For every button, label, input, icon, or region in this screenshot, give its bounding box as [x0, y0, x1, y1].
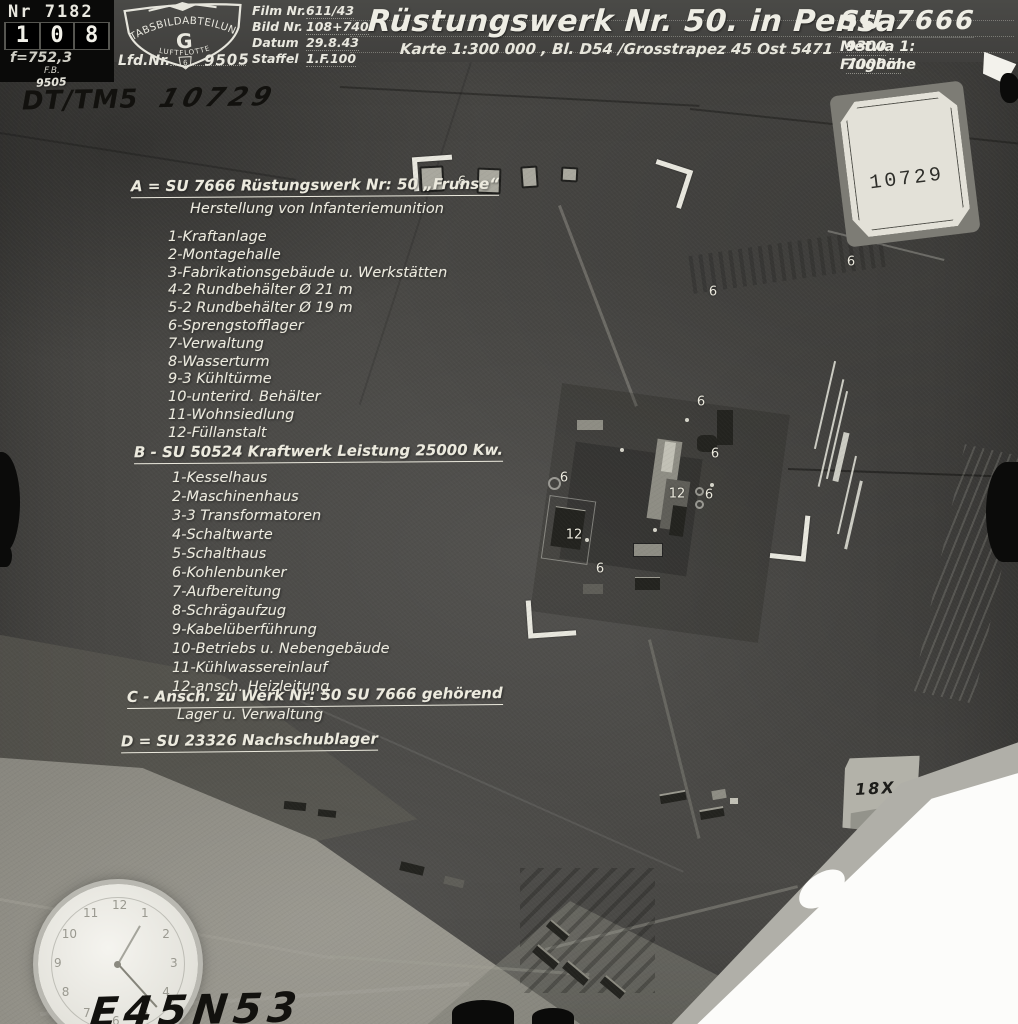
eagle-icon: [169, 1, 195, 11]
emblem-bottom-number: 6: [183, 59, 188, 67]
annotation-item: 8-Schrägaufzug: [172, 602, 390, 621]
film-field-value: 611/43: [306, 3, 354, 19]
film-field-label: Film Nr.: [252, 3, 306, 18]
annotation-item: 3-Fabrikationsgebäude u. Werkstätten: [168, 265, 447, 283]
annotation-item: 7-Verwaltung: [168, 336, 447, 354]
annotation-item: 7-Aufbereitung: [172, 583, 390, 602]
annotation-item: 6-Sprengstofflager: [168, 318, 447, 336]
section-c-subheading: Lager u. Verwaltung: [177, 707, 323, 723]
annotation-item: 2-Maschinenhaus: [172, 488, 390, 507]
annotation-item: 9-Kabelüberführung: [172, 621, 390, 640]
annotation-item: 2-Montagehalle: [168, 247, 447, 265]
annotation-item: 1-Kesselhaus: [172, 469, 390, 488]
section-a-items: 1-Kraftanlage2-Montagehalle3-Fabrikation…: [168, 229, 447, 443]
aerial-photo-sheet: 666666126126 Rüstungswerk Nr. 50. in Pen…: [0, 0, 1018, 1024]
dial-center: [114, 961, 121, 968]
annotation-item: 3-3 Transformatoren: [172, 507, 390, 526]
damage-black-bit: [1000, 73, 1018, 103]
annotation-item: 10-Betriebs u. Nebengebäude: [172, 640, 390, 659]
dial-numeral: 2: [162, 927, 170, 941]
counter-digit: 1: [6, 23, 39, 49]
dial-numeral: 9: [54, 956, 62, 970]
film-field-label: Datum: [252, 35, 299, 50]
edge-blob-left: [0, 452, 20, 552]
handwritten-reference: DT/TM5 10729: [22, 82, 303, 123]
torn-edge-nick: [792, 862, 852, 917]
focal-length: f=752,3: [10, 50, 72, 66]
annotation-item: 5-Schalthaus: [172, 545, 390, 564]
counter-digit: 0: [41, 23, 74, 49]
photo-title: Rüstungswerk Nr. 50. in Pensa: [367, 4, 839, 39]
photo-marker-6: 6: [709, 285, 717, 300]
emblem-shield-graphic: STABSBILDABTEILUNG G LUFTFLOTTE 6: [116, 0, 251, 74]
photo-marker-6: 6: [458, 175, 466, 190]
handwritten-code: DT/TM5: [22, 84, 139, 116]
film-field-row: Datum29.8.43: [252, 35, 364, 50]
unit-emblem: STABSBILDABTEILUNG G LUFTFLOTTE 6: [116, 0, 251, 74]
annotation-item: 1-Kraftanlage: [168, 229, 447, 247]
archive-stamp: 10729: [838, 89, 972, 238]
section-a-subheading: Herstellung von Infanteriemunition: [190, 201, 444, 217]
dial-numeral: 10: [62, 927, 77, 941]
section-c-heading: C - Ansch. zu Werk Nr: 50 SU 7666 gehöre…: [127, 684, 503, 709]
frame-counter: 108: [4, 22, 110, 50]
target-bracket-top-right: [645, 159, 694, 209]
dial-numeral: 1: [141, 906, 149, 920]
annotation-item: 9-3 Kühltürme: [168, 371, 447, 389]
photo-marker-6: 6: [847, 255, 855, 270]
dial-numeral: 8: [62, 985, 70, 999]
sortie-code: SU 7666: [839, 6, 977, 38]
edge-blob-right: [986, 462, 1018, 562]
counter-digit: 8: [75, 23, 108, 49]
annotation-item: 6-Kohlenbunker: [172, 564, 390, 583]
film-field-label: Bild Nr.: [252, 19, 303, 34]
dial-numeral: 12: [112, 898, 127, 912]
camera-data-block: Nr 7182 108 f=752,3 F.B.: [0, 0, 114, 82]
section-b-items: 1-Kesselhaus2-Maschinenhaus3-3 Transform…: [172, 469, 390, 697]
altitude-row: Flughöhe7000m: [840, 57, 901, 73]
target-bracket-right: [770, 512, 811, 562]
handwritten-number: 10729: [155, 82, 280, 114]
target-bracket-top-left: [412, 155, 454, 192]
annotation-item: 11-Kühlwassereinlauf: [172, 659, 390, 678]
annotation-item: 12-Füllanstalt: [168, 425, 447, 443]
film-field-row: Film Nr.611/43: [252, 3, 364, 18]
magnification-text: 18X: [855, 778, 897, 799]
scale-row: Metwa 1:9300: [840, 39, 886, 55]
altitude-label: Flughöhe: [840, 57, 916, 73]
film-field-row: Bild Nr.108+740: [252, 19, 364, 34]
film-scratch-marks: [816, 360, 886, 545]
magnification-label: 18X: [842, 754, 919, 833]
dial-numeral: 11: [83, 906, 98, 920]
edge-blob-left-small: [0, 545, 12, 567]
annotation-item: 8-Wasserturm: [168, 354, 447, 372]
section-d-heading: D = SU 23326 Nachschublager: [121, 730, 378, 754]
fb-label: F.B.: [44, 66, 60, 76]
dial-numeral: 3: [170, 956, 178, 970]
handwritten-coordinates: E45N53: [87, 983, 305, 1024]
target-bracket-bottom-left: [526, 597, 577, 638]
annotation-item: 4-2 Rundbehälter Ø 21 m: [168, 282, 447, 300]
annotation-item: 4-Schaltwarte: [172, 526, 390, 545]
label-shadow: [850, 800, 919, 833]
scale-label: Metwa 1:: [840, 39, 915, 55]
plate-number: Nr 7182: [8, 2, 94, 22]
edge-blob-bottom-1: [452, 1000, 514, 1024]
film-field-value: 108+740: [306, 19, 369, 35]
annotation-item: 10-unterird. Behälter: [168, 389, 447, 407]
annotation-item: 12-ansch. Heizleitung: [172, 678, 390, 697]
film-field-value: 29.8.43: [306, 35, 359, 51]
edge-blob-bottom-2: [532, 1008, 574, 1024]
annotation-item: 11-Wohnsiedlung: [168, 407, 447, 425]
annotation-item: 5-2 Rundbehälter Ø 19 m: [168, 300, 447, 318]
map-reference: Karte 1:300 000 , Bl. D54 /Grosstrapez 4…: [399, 40, 830, 58]
section-b-heading: B - SU 50524 Kraftwerk Leistung 25000 Kw…: [134, 441, 503, 465]
